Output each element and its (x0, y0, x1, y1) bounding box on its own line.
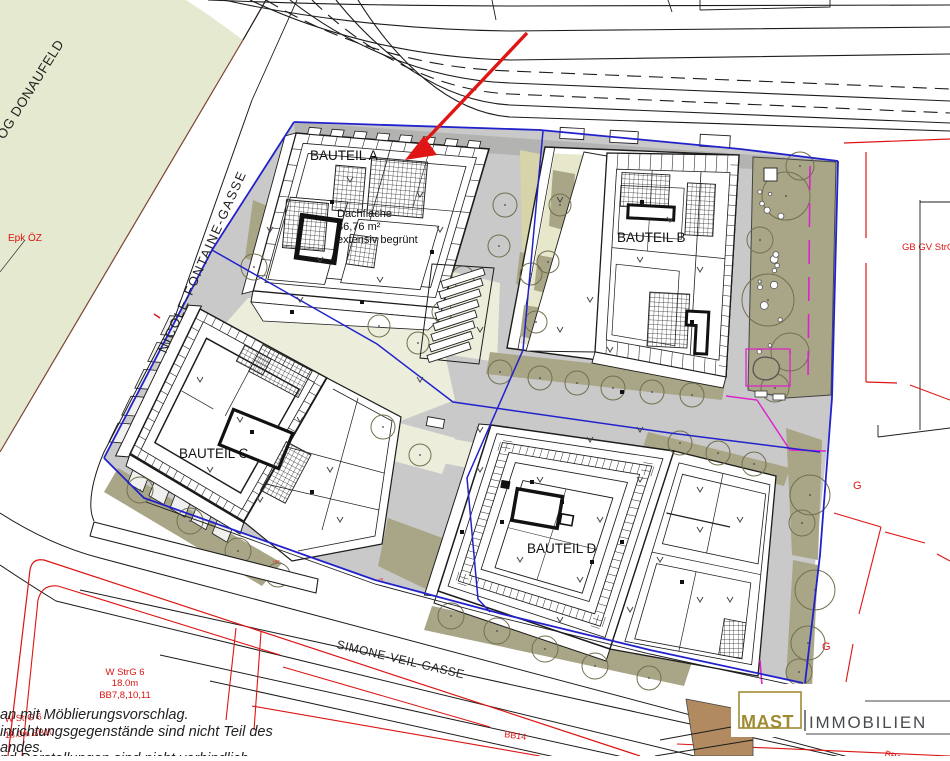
svg-text:G: G (853, 480, 862, 492)
svg-text:W StrG 6: W StrG 6 (105, 667, 144, 678)
svg-text:BB7,8,10,11: BB7,8,10,11 (99, 690, 151, 701)
svg-text:BAUTEIL C: BAUTEIL C (179, 446, 249, 461)
svg-text:an mit Möblierungsvorschlag.: an mit Möblierungsvorschlag. (0, 707, 189, 723)
svg-text:nd Darstellungen sind nicht ve: nd Darstellungen sind nicht verbindlich (0, 751, 248, 756)
svg-text:+#: +# (378, 577, 384, 582)
svg-text:Dachfläche: Dachfläche (337, 208, 392, 220)
svg-text:BAUTEIL A: BAUTEIL A (310, 148, 378, 163)
svg-text:MAST: MAST (741, 712, 794, 732)
svg-text:BAUTEIL B: BAUTEIL B (617, 230, 686, 245)
svg-text:+##: +## (272, 559, 280, 564)
svg-text:BAUTEIL D: BAUTEIL D (527, 541, 597, 556)
svg-text:18.0m: 18.0m (112, 678, 138, 689)
svg-text:inrichtungsgegenstände sind ni: inrichtungsgegenstände sind nicht Teil d… (0, 724, 273, 740)
svg-text:GB GV StrG: GB GV StrG (902, 242, 950, 253)
svg-text:extensiv begrünt: extensiv begrünt (337, 234, 418, 246)
svg-text:Epk ÖZ: Epk ÖZ (8, 232, 42, 244)
svg-text:IMMOBILIEN: IMMOBILIEN (809, 713, 927, 732)
svg-text:36,76 m²: 36,76 m² (337, 221, 381, 233)
svg-text:G: G (822, 641, 831, 653)
